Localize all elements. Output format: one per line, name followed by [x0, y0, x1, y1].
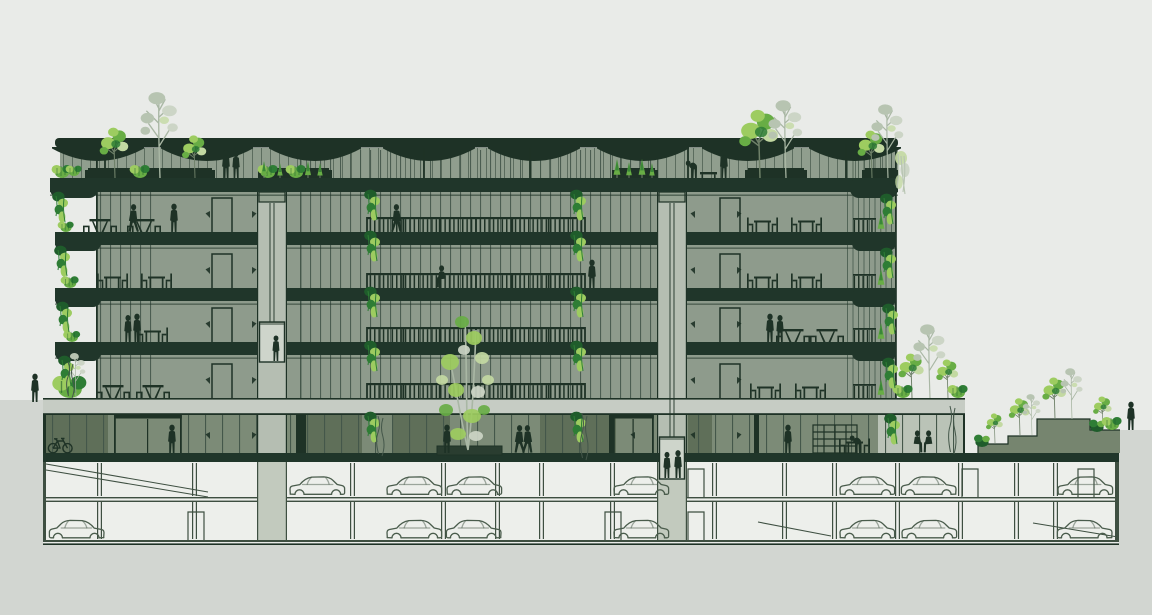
- architectural-section-page: Architectural cross-section of a multi-s…: [0, 0, 1152, 615]
- building-section-drawing: Architectural cross-section of a multi-s…: [0, 0, 1152, 615]
- underground-parking: [43, 462, 1119, 545]
